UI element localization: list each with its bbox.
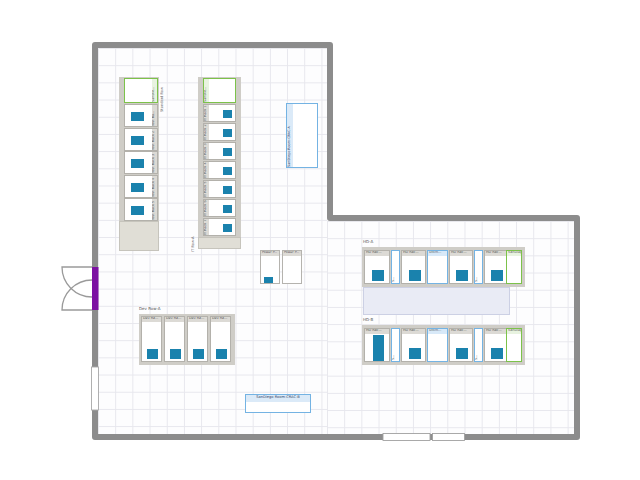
rack-hdb-2[interactable]: HD Rac... — [401, 328, 426, 362]
row-label-hda: HD-A — [363, 240, 373, 244]
rack-hdb-0[interactable]: HD Rac... — [364, 328, 390, 362]
row-label-test: Standard Row — [161, 78, 168, 112]
rack-device — [131, 159, 144, 168]
floor-plan-canvas: Standard Row IT Row-A Dev Row-A HD-A HD-… — [0, 0, 640, 480]
wall-opening-bottom-1 — [383, 434, 430, 441]
rack-it-1[interactable]: IT Rack 1 — [203, 104, 236, 122]
rack-device — [193, 349, 204, 359]
rack-hda-1[interactable]: S... — [391, 250, 400, 284]
rack-label: S... — [392, 252, 399, 282]
rack-label: Test Rack 4 — [152, 176, 157, 197]
rack-dev-0[interactable]: Dev Ra... — [141, 316, 162, 362]
rack-hdb-5[interactable]: S... — [474, 328, 483, 362]
rack-label: Dev Ra... — [188, 317, 207, 322]
rack-it-0[interactable]: SanDie... — [203, 78, 236, 103]
rack-dev-1[interactable]: Dev Ra... — [164, 316, 185, 362]
rack-device — [409, 348, 421, 359]
rack-label: HD Rac... — [365, 251, 389, 256]
rack-test-5[interactable]: Test Rack 5 — [124, 198, 158, 221]
row-label-hdb: HD-B — [363, 318, 373, 322]
power-panel-1[interactable]: Power P... — [260, 250, 280, 284]
rack-device — [131, 183, 144, 192]
row-empty-it — [198, 237, 241, 249]
rack-label: Test Rack 2 — [152, 129, 157, 150]
rack-device — [131, 206, 144, 215]
door-swing-bottom — [62, 280, 92, 310]
rack-label: IT Rack 2 — [204, 124, 209, 140]
rack-hda-5[interactable]: S... — [474, 250, 483, 284]
rack-hda-7[interactable]: SanDiego... — [506, 250, 522, 284]
rack-label: S... — [475, 330, 482, 360]
power-panel-1-label: Power P... — [261, 251, 279, 256]
rack-label: SanDie... — [152, 79, 157, 102]
rack-dev-3[interactable]: Dev Ra... — [210, 316, 231, 362]
rack-dev-2[interactable]: Dev Ra... — [187, 316, 208, 362]
rack-label: IT Rack 4 — [204, 162, 209, 178]
rack-test-2[interactable]: Test Rack 2 — [124, 128, 158, 151]
rack-hda-6[interactable]: HD Rac... — [484, 250, 508, 284]
rack-device — [131, 136, 144, 145]
rack-it-3[interactable]: IT Rack 3 — [203, 142, 236, 160]
rack-label: Test Ra... — [152, 105, 157, 126]
rack-label: Ultim... — [428, 329, 447, 334]
rack-it-7[interactable]: IT Rack 7 — [203, 218, 236, 236]
rack-device — [223, 148, 232, 156]
rack-device — [223, 186, 232, 194]
rack-label: HD Rac... — [485, 329, 507, 334]
power-panel-2-label: Power P... — [283, 251, 301, 256]
rack-label: IT Rack 3 — [204, 143, 209, 159]
power-panel-1-device — [264, 277, 273, 283]
rack-device — [223, 205, 232, 213]
rack-device — [491, 348, 503, 359]
row-label-it: IT Row-A — [192, 222, 199, 252]
rack-label: Dev Ra... — [142, 317, 161, 322]
rack-label: Ultim... — [428, 251, 447, 256]
rack-device — [223, 129, 232, 137]
aisle-containment — [363, 287, 510, 315]
rack-device — [409, 270, 421, 281]
rack-test-0[interactable]: SanDie... — [124, 78, 158, 103]
rack-device — [456, 270, 468, 281]
rack-label: Test Rack 5 — [152, 199, 157, 220]
rack-device — [131, 112, 144, 121]
rack-label: IT Rack 1 — [204, 105, 209, 121]
rack-device — [491, 270, 503, 281]
rack-it-2[interactable]: IT Rack 2 — [203, 123, 236, 141]
rack-it-5[interactable]: IT Rack 5 — [203, 180, 236, 198]
rack-label: SanDie... — [204, 79, 209, 102]
crac-b-label: SanDiego Room-CRAC-B — [246, 395, 310, 402]
crac-a-label: SanDiego Room-CRAC-A — [287, 104, 293, 167]
row-label-dev: Dev Row-A — [139, 307, 161, 311]
rack-label: Test Rack 3 — [152, 152, 157, 173]
power-panel-2[interactable]: Power P... — [282, 250, 302, 284]
rack-device — [223, 167, 232, 175]
rack-label: S... — [475, 252, 482, 282]
rack-device — [223, 110, 232, 118]
rack-hdb-6[interactable]: HD Rac... — [484, 328, 508, 362]
rack-device — [223, 224, 232, 232]
rack-label: HD Rac... — [402, 329, 425, 334]
rack-hda-2[interactable]: HD Rac... — [401, 250, 426, 284]
rack-label: S... — [392, 330, 399, 360]
rack-label: HD Rac... — [450, 251, 472, 256]
rack-label: HD Rac... — [402, 251, 425, 256]
rack-test-4[interactable]: Test Rack 4 — [124, 175, 158, 198]
rack-label: Dev Ra... — [165, 317, 184, 322]
wall-opening-bottom-2 — [433, 434, 465, 441]
rack-label: IT Rack 6 — [204, 200, 209, 216]
rack-label: HD Rac... — [485, 251, 507, 256]
rack-hdb-3[interactable]: Ultim... — [427, 328, 448, 362]
rack-test-1[interactable]: Test Ra... — [124, 104, 158, 127]
rack-hdb-4[interactable]: HD Rac... — [449, 328, 473, 362]
rack-label: SanDiego... — [507, 251, 521, 256]
row-empty-test — [119, 221, 159, 251]
rack-label: IT Rack 5 — [204, 181, 209, 197]
rack-label: SanDiego... — [507, 329, 521, 334]
rack-hdb-7[interactable]: SanDiego... — [506, 328, 522, 362]
door-swing-top — [62, 267, 92, 297]
crac-unit-a[interactable]: SanDiego Room-CRAC-A — [286, 103, 318, 168]
rack-hda-3[interactable]: Ultim... — [427, 250, 448, 284]
rack-label: IT Rack 7 — [204, 219, 209, 235]
rack-label: Dev Ra... — [211, 317, 230, 322]
rack-device — [147, 349, 158, 359]
rack-label: HD Rac... — [365, 329, 389, 334]
rack-hda-0[interactable]: HD Rac... — [364, 250, 390, 284]
crac-unit-b[interactable]: SanDiego Room-CRAC-B — [245, 394, 311, 413]
rack-device — [170, 349, 181, 359]
rack-device — [216, 349, 227, 359]
rack-device — [372, 270, 384, 281]
rack-device — [373, 335, 384, 361]
rack-hdb-1[interactable]: S... — [391, 328, 400, 362]
rack-device — [456, 348, 468, 359]
rack-it-4[interactable]: IT Rack 4 — [203, 161, 236, 179]
rack-it-6[interactable]: IT Rack 6 — [203, 199, 236, 217]
rack-test-3[interactable]: Test Rack 3 — [124, 151, 158, 174]
rack-hda-4[interactable]: HD Rac... — [449, 250, 473, 284]
rack-label: HD Rac... — [450, 329, 472, 334]
